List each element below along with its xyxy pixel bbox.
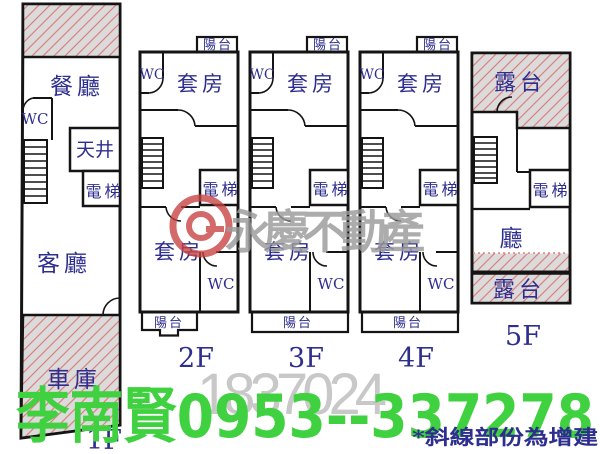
door-arc-living (103, 298, 120, 315)
room-label-wc-bottom: WC (208, 275, 235, 293)
brand-watermark (173, 198, 229, 254)
brand-watermark-text: 永慶不動產 (225, 206, 425, 258)
stair-shaft-wall (517, 128, 530, 172)
door-arc-suite-top (288, 110, 305, 126)
agent-name: 李南賢 (16, 382, 178, 452)
room-label-wc: WC (22, 110, 49, 128)
stair-treads (474, 143, 497, 178)
door-arc-suite-top (178, 110, 195, 126)
room-label-wc-top: WC (139, 67, 164, 83)
room-label-suite-top: 套房 (177, 72, 223, 96)
room-label-wc-top: WC (249, 67, 274, 83)
corridor-wall (250, 110, 348, 126)
room-label-balcony-top: 陽台 (423, 38, 451, 53)
room-label-wc-top: WC (359, 67, 384, 83)
room-label-balcony-bottom: 陽台 (283, 316, 311, 331)
floorplan-5f: 露台 電梯 廳 露台 5F (472, 53, 570, 352)
room-label-balcony-top: 陽台 (203, 38, 231, 53)
room-label-dining: 餐廳 (50, 74, 100, 100)
corridor-wall (140, 110, 238, 126)
hatched-addition-front (23, 4, 120, 57)
stairs (24, 140, 47, 203)
room-label-wc-bottom: WC (318, 275, 345, 293)
room-label-living: 客廳 (37, 251, 87, 277)
room-label-suite-top: 套房 (287, 72, 333, 96)
door-arc-wc (23, 98, 33, 110)
room-label-wc-bottom: WC (428, 275, 455, 293)
door-arc-suite-top (398, 110, 415, 126)
hatch-footnote: *斜線部份為增建 (412, 425, 598, 449)
room-label-balcony-bottom: 陽台 (154, 316, 182, 331)
room-label-balcony-bottom: 陽台 (393, 316, 421, 331)
room-label-hall: 廳 (500, 226, 523, 252)
corridor-wall (360, 110, 458, 126)
floor-label-4f: 4F (398, 343, 434, 374)
floor-label-5f: 5F (505, 321, 541, 352)
room-label-balcony-top: 陽台 (313, 38, 341, 53)
room-label-light-well: 天井 (76, 139, 114, 161)
door-arc-wc-bottom (423, 252, 437, 266)
room-label-suite-top: 套房 (397, 72, 443, 96)
stairs (474, 137, 497, 183)
floorplan-canvas: 餐廳 WC 天井 電梯 客廳 車庫 1F 陽台 WC 套房 電梯 套房 WC 陽… (0, 0, 600, 454)
floorplan-image: 餐廳 WC 天井 電梯 客廳 車庫 1F 陽台 WC 套房 電梯 套房 WC 陽… (0, 0, 600, 454)
hatched-hall-strip (474, 254, 569, 272)
